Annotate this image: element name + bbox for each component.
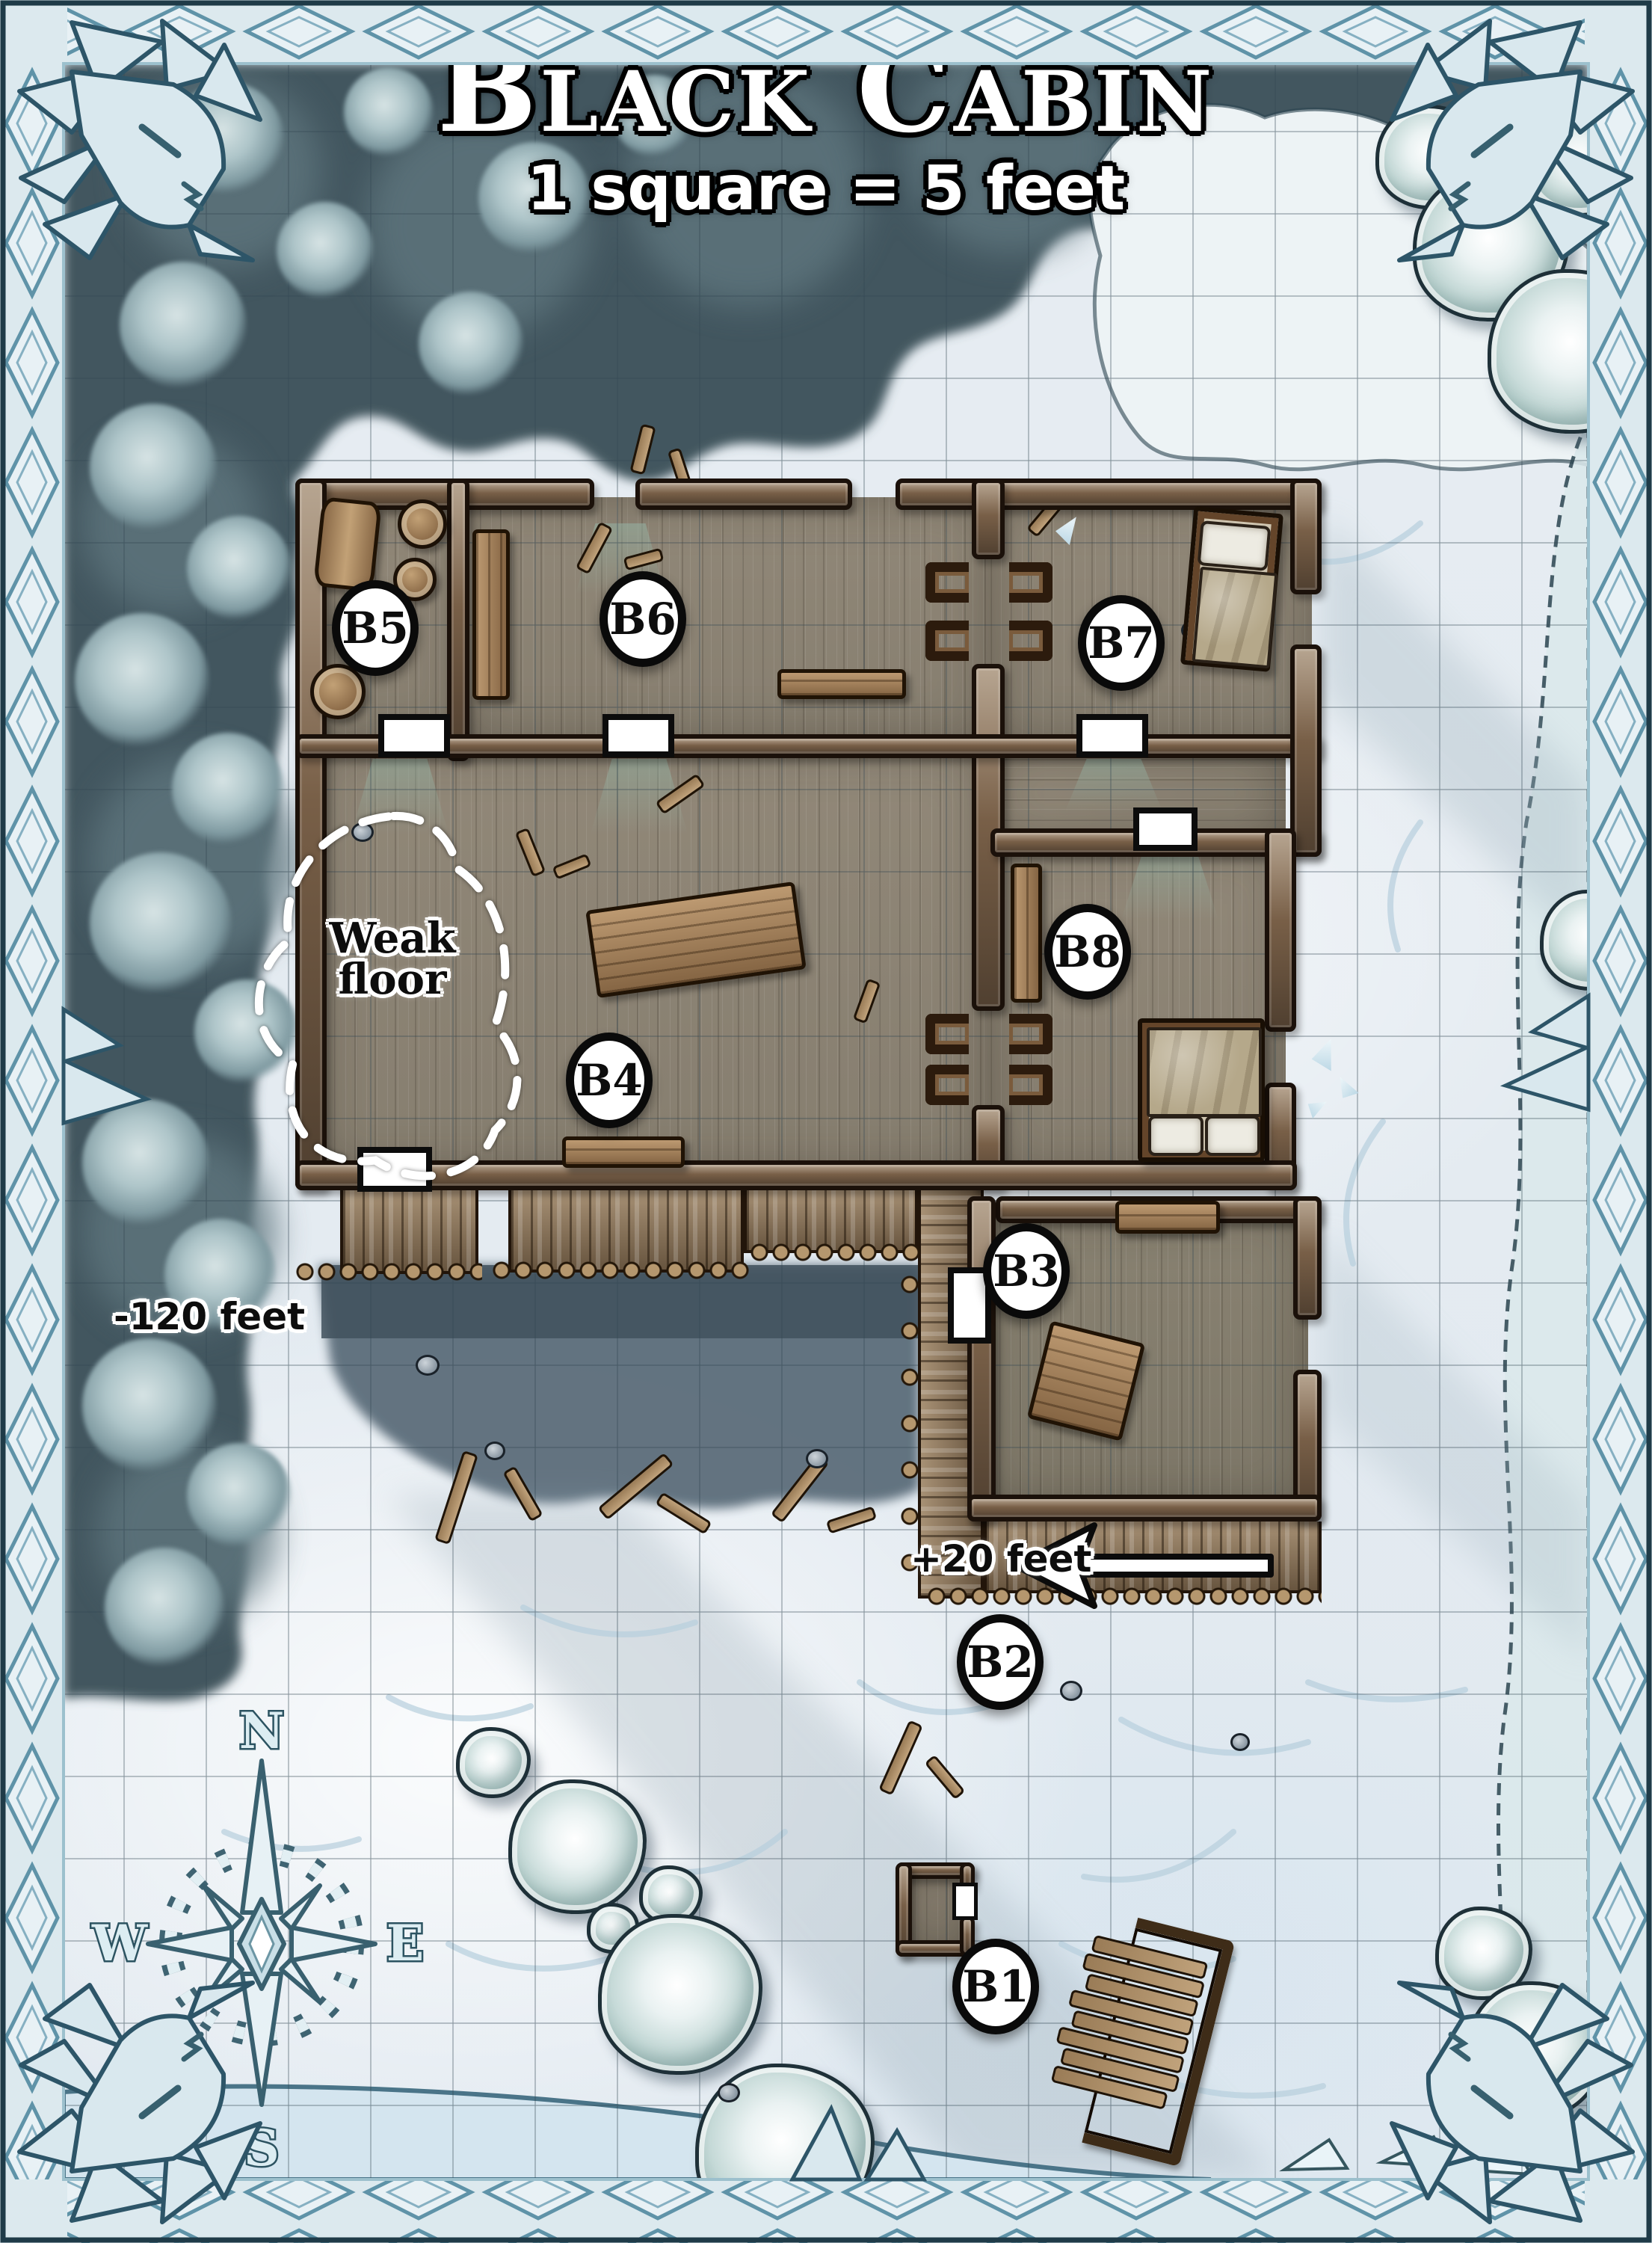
room-label-b5: B5 <box>332 580 419 676</box>
room-label-b8: B8 <box>1044 904 1131 1000</box>
wall-b5-b6 <box>447 479 469 761</box>
weak-floor-label: Weak floor <box>299 918 486 1000</box>
barrel <box>310 664 366 719</box>
pillow <box>1148 1116 1203 1156</box>
dock-posts <box>492 1261 750 1282</box>
dock-elevation-label: +20 feet <box>910 1542 1091 1578</box>
room-label-b4: B4 <box>566 1033 653 1128</box>
door-leaf <box>1009 621 1052 661</box>
door-leaf <box>925 1065 969 1105</box>
snowy-tree <box>194 979 299 1084</box>
shelf-b8 <box>1011 864 1042 1003</box>
snowy-tree <box>120 262 247 389</box>
snowy-tree <box>187 1443 292 1548</box>
room-label-text: B7 <box>1088 618 1154 668</box>
door-leaf <box>925 562 969 603</box>
snowy-tree <box>105 1548 224 1667</box>
wall-b3-south <box>967 1495 1322 1522</box>
barrel-on-side <box>313 496 382 592</box>
wall-central <box>972 479 1005 559</box>
door-leaf <box>925 621 969 661</box>
wall-east-lower <box>1265 828 1296 1032</box>
map-grid <box>64 64 1588 2179</box>
room-label-text: B4 <box>576 1055 642 1106</box>
dock-posts <box>750 1243 920 1264</box>
battle-map: N S W E B5 B6 B7 B8 B4 B3 B2 B1 Weak flo… <box>0 0 1652 2243</box>
room-label-b6: B6 <box>600 571 686 667</box>
snowy-tree <box>75 613 209 748</box>
snowy-tree <box>187 516 292 621</box>
pillow <box>1198 520 1272 571</box>
bench-b4 <box>562 1136 685 1168</box>
room-label-b1: B1 <box>952 1939 1039 2034</box>
map-scale-note: 1 square = 5 feet <box>0 159 1652 220</box>
pebble <box>806 1449 828 1468</box>
room-label-text: B6 <box>609 594 676 644</box>
door-b7 <box>1076 714 1148 757</box>
room-label-text: B5 <box>342 603 408 653</box>
wall-north <box>896 479 1322 510</box>
room-label-b2: B2 <box>957 1614 1044 1710</box>
room-label-text: B3 <box>993 1246 1059 1296</box>
snowy-tree <box>419 292 523 396</box>
pebble <box>351 822 374 842</box>
room-label-text: B2 <box>967 1637 1033 1687</box>
weak-floor-line1: Weak <box>299 918 486 959</box>
dock-posts <box>295 1262 482 1283</box>
blanket <box>1192 567 1278 669</box>
door-leaf <box>1009 1065 1052 1105</box>
wall-east-upper <box>1290 479 1322 594</box>
pebble <box>718 2083 740 2102</box>
room-label-b3: B3 <box>983 1223 1070 1319</box>
ice-tree <box>1488 269 1652 434</box>
pebble <box>1060 1681 1082 1701</box>
door-b8 <box>1133 807 1198 851</box>
weak-floor-line2: floor <box>299 959 486 1000</box>
wall-south <box>295 1160 1297 1190</box>
snowy-tree <box>90 852 232 994</box>
dock-posts <box>927 1587 1322 1607</box>
door-b5 <box>378 714 450 757</box>
room-label-text: B8 <box>1054 926 1121 977</box>
pebble <box>484 1442 505 1460</box>
ice-tree <box>1540 890 1645 991</box>
snowy-tree <box>82 1338 217 1473</box>
snowy-tree <box>172 733 284 845</box>
blanket <box>1147 1027 1262 1117</box>
wall-north <box>635 479 852 510</box>
snowy-tree <box>90 404 217 531</box>
barrel <box>398 499 447 549</box>
door-outhouse <box>952 1883 978 1920</box>
pebble <box>1230 1733 1250 1751</box>
table-b6 <box>472 529 510 700</box>
pebble <box>416 1355 440 1376</box>
pillow <box>1205 1116 1260 1156</box>
bench-b6 <box>777 669 906 699</box>
door-leaf <box>1009 1014 1052 1054</box>
wall-b3-east <box>1293 1196 1322 1320</box>
shelf-b3 <box>1115 1201 1220 1234</box>
room-label-b7: B7 <box>1078 595 1165 691</box>
door-south <box>357 1147 432 1192</box>
room-label-text: B1 <box>962 1961 1029 2012</box>
cliff-elevation-label: -120 feet <box>114 1299 305 1335</box>
door-b6 <box>602 714 674 757</box>
map-title: Black Cabin <box>0 31 1652 150</box>
snowy-tree <box>82 1099 209 1226</box>
wall-east-upper <box>1290 644 1322 857</box>
door-leaf <box>925 1014 969 1054</box>
door-leaf <box>1009 562 1052 603</box>
